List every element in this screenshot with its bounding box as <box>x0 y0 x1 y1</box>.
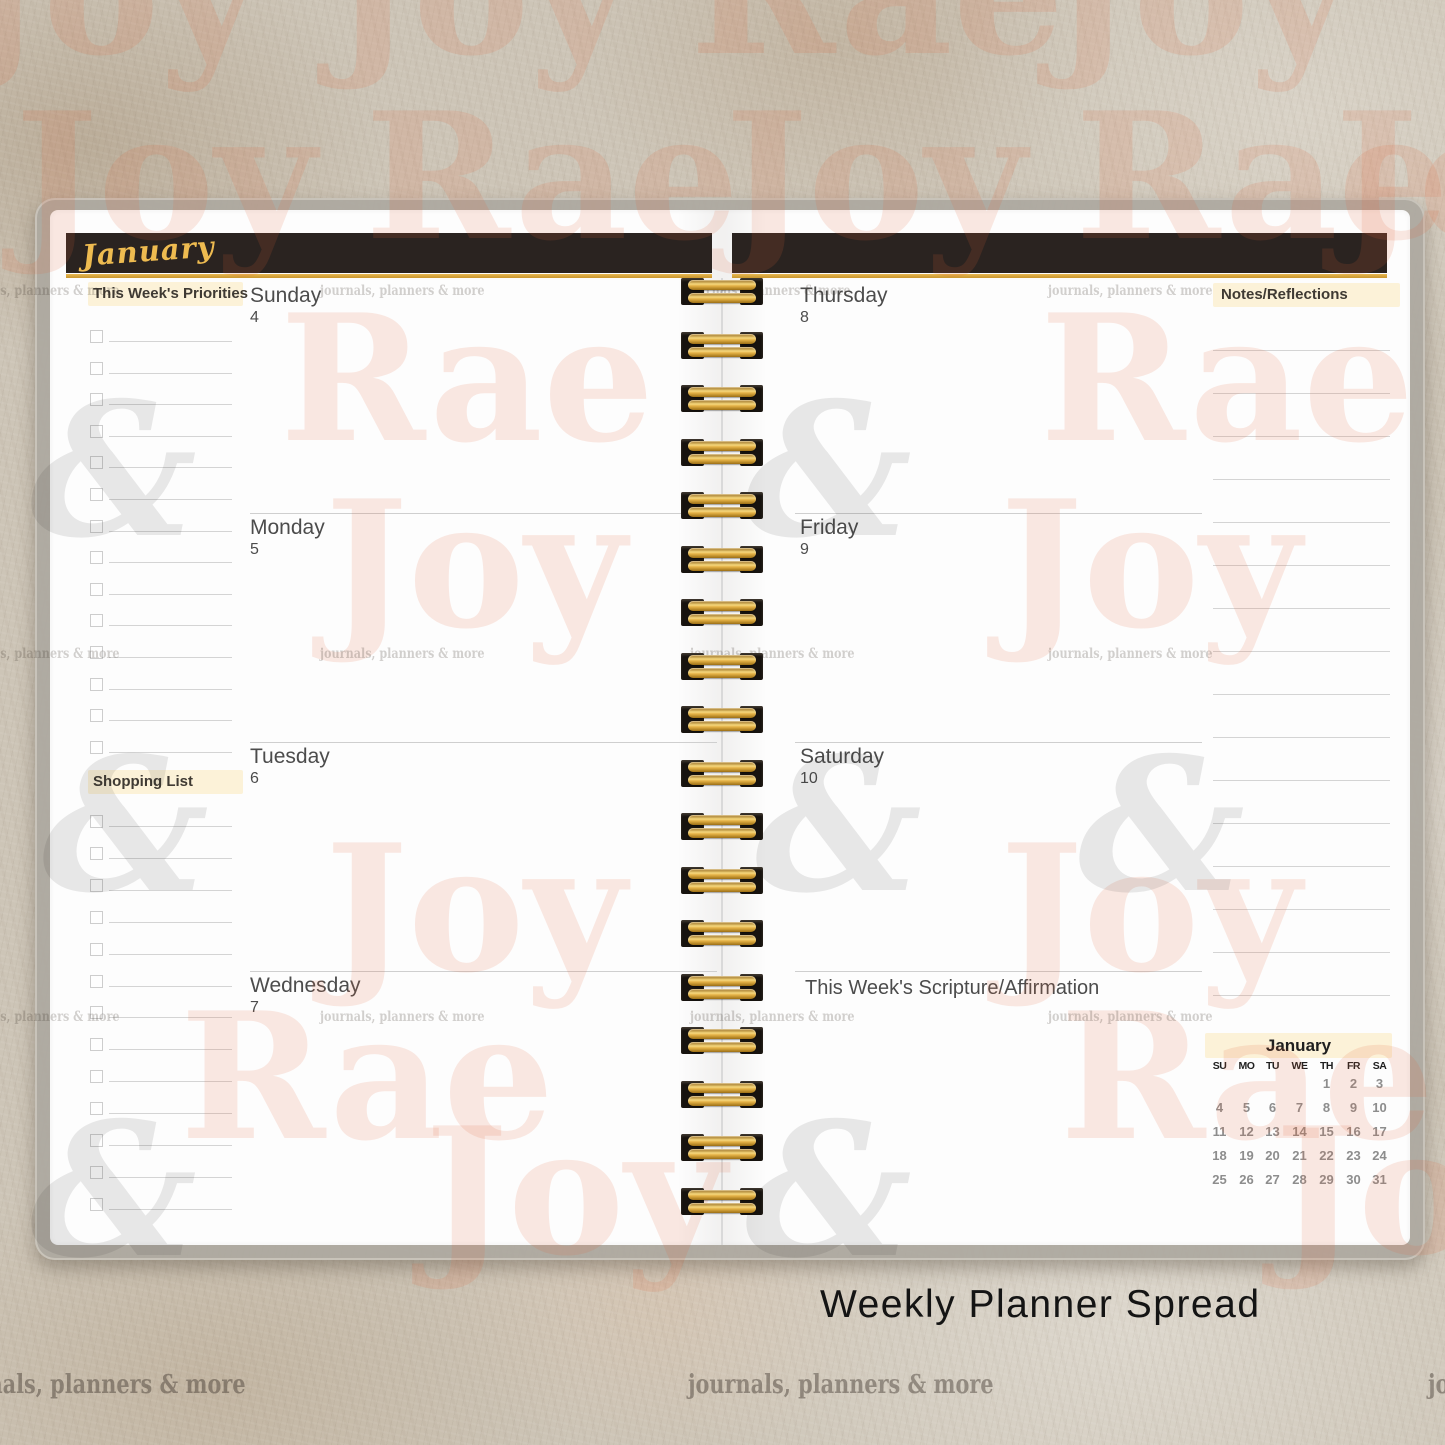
shopping-checkbox <box>90 1070 103 1083</box>
spiral-coil <box>681 439 763 466</box>
shopping-write-line <box>109 1209 232 1210</box>
shopping-write-line <box>109 890 232 891</box>
coil-wire <box>688 869 756 879</box>
calendar-date: 3 <box>1366 1076 1393 1091</box>
day-separator <box>795 513 1202 514</box>
calendar-date: 22 <box>1313 1148 1340 1163</box>
spiral-coil <box>681 385 763 412</box>
priority-write-line <box>109 467 232 468</box>
coil-wire <box>688 387 756 397</box>
calendar-date: 14 <box>1286 1124 1313 1139</box>
shopping-checkbox <box>90 911 103 924</box>
priority-write-line <box>109 341 232 342</box>
coil-wire <box>688 762 756 772</box>
spiral-coil <box>681 492 763 519</box>
day-separator <box>795 742 1202 743</box>
priority-checkbox <box>90 330 103 343</box>
priority-write-line <box>109 752 232 753</box>
coil-wire <box>688 935 756 945</box>
image-caption: Weekly Planner Spread <box>820 1283 1261 1327</box>
shopping-checkbox <box>90 1198 103 1211</box>
coil-wire <box>688 334 756 344</box>
notes-line <box>1213 350 1390 351</box>
spiral-coil <box>681 974 763 1001</box>
watermark-text: Joy <box>330 0 631 80</box>
notes-line <box>1213 651 1390 652</box>
coil-wire <box>688 280 756 290</box>
priority-write-line <box>109 531 232 532</box>
notes-line <box>1213 952 1390 953</box>
coil-wire <box>688 454 756 464</box>
shopping-write-line <box>109 1049 232 1050</box>
gold-divider-right <box>732 274 1387 278</box>
calendar-date: 23 <box>1340 1148 1367 1163</box>
priority-checkbox <box>90 583 103 596</box>
coil-wire <box>688 708 756 718</box>
calendar-date: 17 <box>1366 1124 1393 1139</box>
shopping-list-heading: Shopping List <box>88 770 243 794</box>
priority-checkbox <box>90 741 103 754</box>
calendar-date: 19 <box>1233 1148 1260 1163</box>
spiral-coil <box>681 1134 763 1161</box>
coil-wire <box>688 976 756 986</box>
calendar-date: 25 <box>1206 1172 1233 1187</box>
coil-wire <box>688 668 756 678</box>
calendar-date: 1 <box>1313 1076 1340 1091</box>
shopping-checkbox <box>90 1006 103 1019</box>
coil-wire <box>688 1096 756 1106</box>
shopping-write-line <box>109 858 232 859</box>
shopping-checkbox <box>90 943 103 956</box>
coil-wire <box>688 601 756 611</box>
coil-wire <box>688 1029 756 1039</box>
shopping-write-line <box>109 1113 232 1114</box>
priorities-heading: This Week's Priorities <box>88 282 243 306</box>
day-label: Saturday <box>800 746 884 768</box>
calendar-date: 5 <box>1233 1100 1260 1115</box>
spiral-coil <box>681 1188 763 1215</box>
day-separator <box>250 513 717 514</box>
coil-wire <box>688 828 756 838</box>
notes-line <box>1213 479 1390 480</box>
priority-write-line <box>109 373 232 374</box>
spiral-coil <box>681 546 763 573</box>
calendar-date: 4 <box>1206 1100 1233 1115</box>
notes-line <box>1213 565 1390 566</box>
day-date: 5 <box>250 541 259 559</box>
calendar-date: 20 <box>1259 1148 1286 1163</box>
day-label: Thursday <box>800 285 888 307</box>
shopping-write-line <box>109 986 232 987</box>
coil-wire <box>688 655 756 665</box>
coil-wire <box>688 614 756 624</box>
scripture-separator <box>795 971 1202 972</box>
gold-divider-left <box>66 274 712 278</box>
calendar-date: 16 <box>1340 1124 1367 1139</box>
spiral-coil <box>681 332 763 359</box>
coil-wire <box>688 775 756 785</box>
coil-wire <box>688 1042 756 1052</box>
priority-write-line <box>109 594 232 595</box>
calendar-day-header: SU <box>1206 1060 1233 1072</box>
calendar-date: 10 <box>1366 1100 1393 1115</box>
spiral-coil <box>681 278 763 305</box>
shopping-checkbox <box>90 879 103 892</box>
coil-wire <box>688 1149 756 1159</box>
watermark-text: Joy <box>0 0 261 80</box>
shopping-checkbox <box>90 1038 103 1051</box>
calendar-date: 11 <box>1206 1124 1233 1139</box>
coil-wire <box>688 721 756 731</box>
notes-heading: Notes/Reflections <box>1213 283 1400 307</box>
calendar-date: 21 <box>1286 1148 1313 1163</box>
day-label: Tuesday <box>250 746 330 768</box>
notes-line <box>1213 909 1390 910</box>
day-label: Monday <box>250 517 325 539</box>
coil-wire <box>688 347 756 357</box>
watermark-text: Rae <box>690 0 1064 80</box>
day-date: 6 <box>250 770 259 788</box>
coil-wire <box>688 1136 756 1146</box>
calendar-day-header: SA <box>1366 1060 1393 1072</box>
shopping-write-line <box>109 922 232 923</box>
priority-checkbox <box>90 425 103 438</box>
calendar-date: 27 <box>1259 1172 1286 1187</box>
priority-checkbox <box>90 362 103 375</box>
scripture-heading: This Week's Scripture/Affirmation <box>805 977 1099 1000</box>
coil-wire <box>688 815 756 825</box>
month-banner-left: January <box>66 233 712 273</box>
day-date: 8 <box>800 309 809 327</box>
priority-checkbox <box>90 646 103 659</box>
calendar-date: 28 <box>1286 1172 1313 1187</box>
calendar-date: 18 <box>1206 1148 1233 1163</box>
day-date: 7 <box>250 999 259 1017</box>
calendar-date: 29 <box>1313 1172 1340 1187</box>
spiral-coil <box>681 813 763 840</box>
shopping-write-line <box>109 1081 232 1082</box>
shopping-write-line <box>109 1017 232 1018</box>
mini-calendar-title: January <box>1205 1033 1392 1058</box>
month-title: January <box>81 229 216 272</box>
spiral-coil <box>681 1081 763 1108</box>
coil-wire <box>688 441 756 451</box>
priority-checkbox <box>90 551 103 564</box>
shopping-write-line <box>109 826 232 827</box>
calendar-day-header: MO <box>1233 1060 1260 1072</box>
watermark-text: Joy <box>1050 0 1351 80</box>
watermark-text: journals, planners & more <box>0 1372 246 1398</box>
coil-wire <box>688 293 756 303</box>
notes-line <box>1213 737 1390 738</box>
calendar-date: 13 <box>1259 1124 1286 1139</box>
coil-wire <box>688 507 756 517</box>
calendar-day-header: TU <box>1259 1060 1286 1072</box>
priority-checkbox <box>90 709 103 722</box>
day-label: Friday <box>800 517 858 539</box>
product-image: January This Week's Priorities Shopping … <box>0 0 1445 1445</box>
shopping-write-line <box>109 1177 232 1178</box>
day-date: 10 <box>800 770 818 788</box>
month-banner-right <box>732 233 1387 273</box>
priority-write-line <box>109 404 232 405</box>
calendar-date: 2 <box>1340 1076 1367 1091</box>
shopping-checkbox <box>90 1134 103 1147</box>
coil-wire <box>688 1190 756 1200</box>
spiral-coil <box>681 706 763 733</box>
shopping-checkbox <box>90 1166 103 1179</box>
priority-write-line <box>109 562 232 563</box>
priority-write-line <box>109 436 232 437</box>
coil-wire <box>688 400 756 410</box>
coil-wire <box>688 1203 756 1213</box>
shopping-checkbox <box>90 1102 103 1115</box>
shopping-checkbox <box>90 847 103 860</box>
calendar-date: 12 <box>1233 1124 1260 1139</box>
notes-line <box>1213 393 1390 394</box>
priority-write-line <box>109 625 232 626</box>
notes-line <box>1213 694 1390 695</box>
priority-write-line <box>109 499 232 500</box>
coil-wire <box>688 922 756 932</box>
priority-checkbox <box>90 614 103 627</box>
coil-wire <box>688 882 756 892</box>
shopping-write-line <box>109 1145 232 1146</box>
calendar-day-header: TH <box>1313 1060 1340 1072</box>
calendar-date: 15 <box>1313 1124 1340 1139</box>
priority-checkbox <box>90 456 103 469</box>
priority-checkbox <box>90 393 103 406</box>
calendar-date: 30 <box>1340 1172 1367 1187</box>
calendar-date: 26 <box>1233 1172 1260 1187</box>
spiral-coil <box>681 867 763 894</box>
notes-line <box>1213 995 1390 996</box>
notes-line <box>1213 823 1390 824</box>
priority-write-line <box>109 720 232 721</box>
calendar-date: 24 <box>1366 1148 1393 1163</box>
watermark-text: journals, planners & more <box>688 1372 994 1398</box>
coil-wire <box>688 1083 756 1093</box>
spiral-coil <box>681 653 763 680</box>
priority-checkbox <box>90 520 103 533</box>
priority-write-line <box>109 657 232 658</box>
spiral-coil <box>681 920 763 947</box>
coil-wire <box>688 989 756 999</box>
notes-line <box>1213 866 1390 867</box>
spiral-coil <box>681 599 763 626</box>
day-date: 9 <box>800 541 809 559</box>
day-separator <box>250 971 717 972</box>
notes-line <box>1213 608 1390 609</box>
shopping-checkbox <box>90 815 103 828</box>
day-date: 4 <box>250 309 259 327</box>
notes-line <box>1213 780 1390 781</box>
calendar-date: 6 <box>1259 1100 1286 1115</box>
calendar-date: 8 <box>1313 1100 1340 1115</box>
calendar-date: 31 <box>1366 1172 1393 1187</box>
calendar-date: 7 <box>1286 1100 1313 1115</box>
calendar-day-header: WE <box>1286 1060 1313 1072</box>
coil-wire <box>688 561 756 571</box>
shopping-checkbox <box>90 975 103 988</box>
priority-write-line <box>109 689 232 690</box>
day-separator <box>250 742 717 743</box>
notes-line <box>1213 522 1390 523</box>
calendar-day-header: FR <box>1340 1060 1367 1072</box>
spiral-coil <box>681 1027 763 1054</box>
priority-checkbox <box>90 678 103 691</box>
day-label: Sunday <box>250 285 321 307</box>
notes-line <box>1213 436 1390 437</box>
coil-wire <box>688 548 756 558</box>
spiral-coil <box>681 760 763 787</box>
shopping-write-line <box>109 954 232 955</box>
calendar-date: 9 <box>1340 1100 1367 1115</box>
watermark-text: journals, planners & more <box>1428 1372 1445 1398</box>
coil-wire <box>688 494 756 504</box>
priority-checkbox <box>90 488 103 501</box>
day-label: Wednesday <box>250 975 361 997</box>
